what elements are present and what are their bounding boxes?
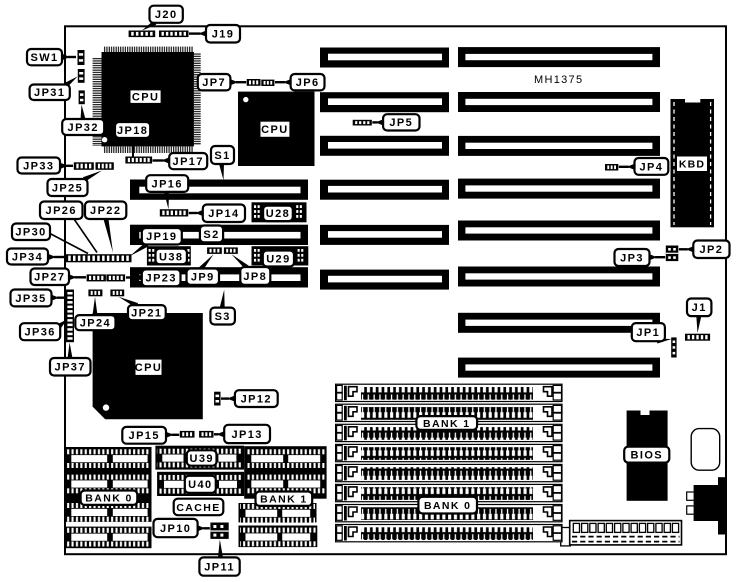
svg-text:U39: U39: [190, 453, 214, 465]
svg-text:JP12: JP12: [241, 394, 272, 406]
svg-text:JP19: JP19: [146, 231, 177, 243]
svg-text:JP30: JP30: [15, 227, 46, 239]
svg-text:JP14: JP14: [208, 208, 239, 220]
svg-text:CPU: CPU: [261, 124, 288, 136]
svg-text:JP33: JP33: [23, 160, 54, 172]
svg-text:CPU: CPU: [132, 92, 159, 104]
svg-text:U38: U38: [159, 251, 183, 263]
svg-text:JP23: JP23: [146, 273, 177, 285]
svg-text:S2: S2: [203, 229, 219, 241]
svg-text:J1: J1: [692, 302, 707, 314]
svg-text:MH1375: MH1375: [534, 74, 583, 86]
svg-text:JP34: JP34: [12, 251, 43, 263]
svg-text:JP9: JP9: [191, 272, 215, 284]
svg-text:JP32: JP32: [68, 122, 99, 134]
svg-text:BANK 0: BANK 0: [85, 493, 133, 505]
svg-text:BIOS: BIOS: [631, 450, 664, 462]
svg-text:JP15: JP15: [129, 430, 160, 442]
svg-text:JP35: JP35: [15, 293, 46, 305]
svg-text:JP25: JP25: [52, 182, 83, 194]
svg-text:U29: U29: [266, 253, 290, 265]
svg-text:S1: S1: [214, 150, 230, 162]
svg-text:JP11: JP11: [204, 561, 235, 573]
svg-text:JP17: JP17: [173, 156, 204, 168]
svg-text:CPU: CPU: [135, 362, 162, 374]
svg-text:JP24: JP24: [80, 318, 111, 330]
svg-text:JP10: JP10: [160, 523, 191, 535]
svg-text:JP31: JP31: [34, 87, 65, 99]
svg-text:JP6: JP6: [296, 77, 320, 89]
svg-text:JP5: JP5: [389, 117, 413, 129]
svg-text:JP8: JP8: [243, 271, 267, 283]
svg-text:JP21: JP21: [131, 308, 162, 320]
svg-text:J20: J20: [155, 9, 178, 21]
svg-text:JP13: JP13: [231, 429, 262, 441]
svg-text:JP22: JP22: [90, 205, 121, 217]
svg-text:JP26: JP26: [46, 205, 77, 217]
svg-text:U40: U40: [188, 479, 212, 491]
svg-text:BANK 0: BANK 0: [424, 500, 472, 512]
svg-text:KBD: KBD: [679, 159, 705, 171]
svg-text:U28: U28: [266, 208, 290, 220]
svg-text:BANK 1: BANK 1: [260, 494, 308, 506]
svg-text:JP7: JP7: [202, 77, 226, 89]
svg-text:JP1: JP1: [636, 327, 660, 339]
svg-text:JP18: JP18: [117, 125, 148, 137]
svg-text:JP4: JP4: [640, 161, 664, 173]
svg-text:JP27: JP27: [34, 272, 65, 284]
svg-text:CACHE: CACHE: [176, 502, 220, 514]
svg-text:JP3: JP3: [620, 252, 644, 264]
svg-text:J19: J19: [212, 29, 235, 41]
svg-text:SW1: SW1: [30, 52, 58, 64]
svg-text:JP2: JP2: [700, 244, 724, 256]
svg-text:BANK 1: BANK 1: [423, 418, 471, 430]
svg-text:S3: S3: [215, 311, 231, 323]
svg-text:JP37: JP37: [55, 362, 86, 374]
svg-text:JP16: JP16: [152, 179, 183, 191]
svg-text:JP36: JP36: [24, 327, 55, 339]
